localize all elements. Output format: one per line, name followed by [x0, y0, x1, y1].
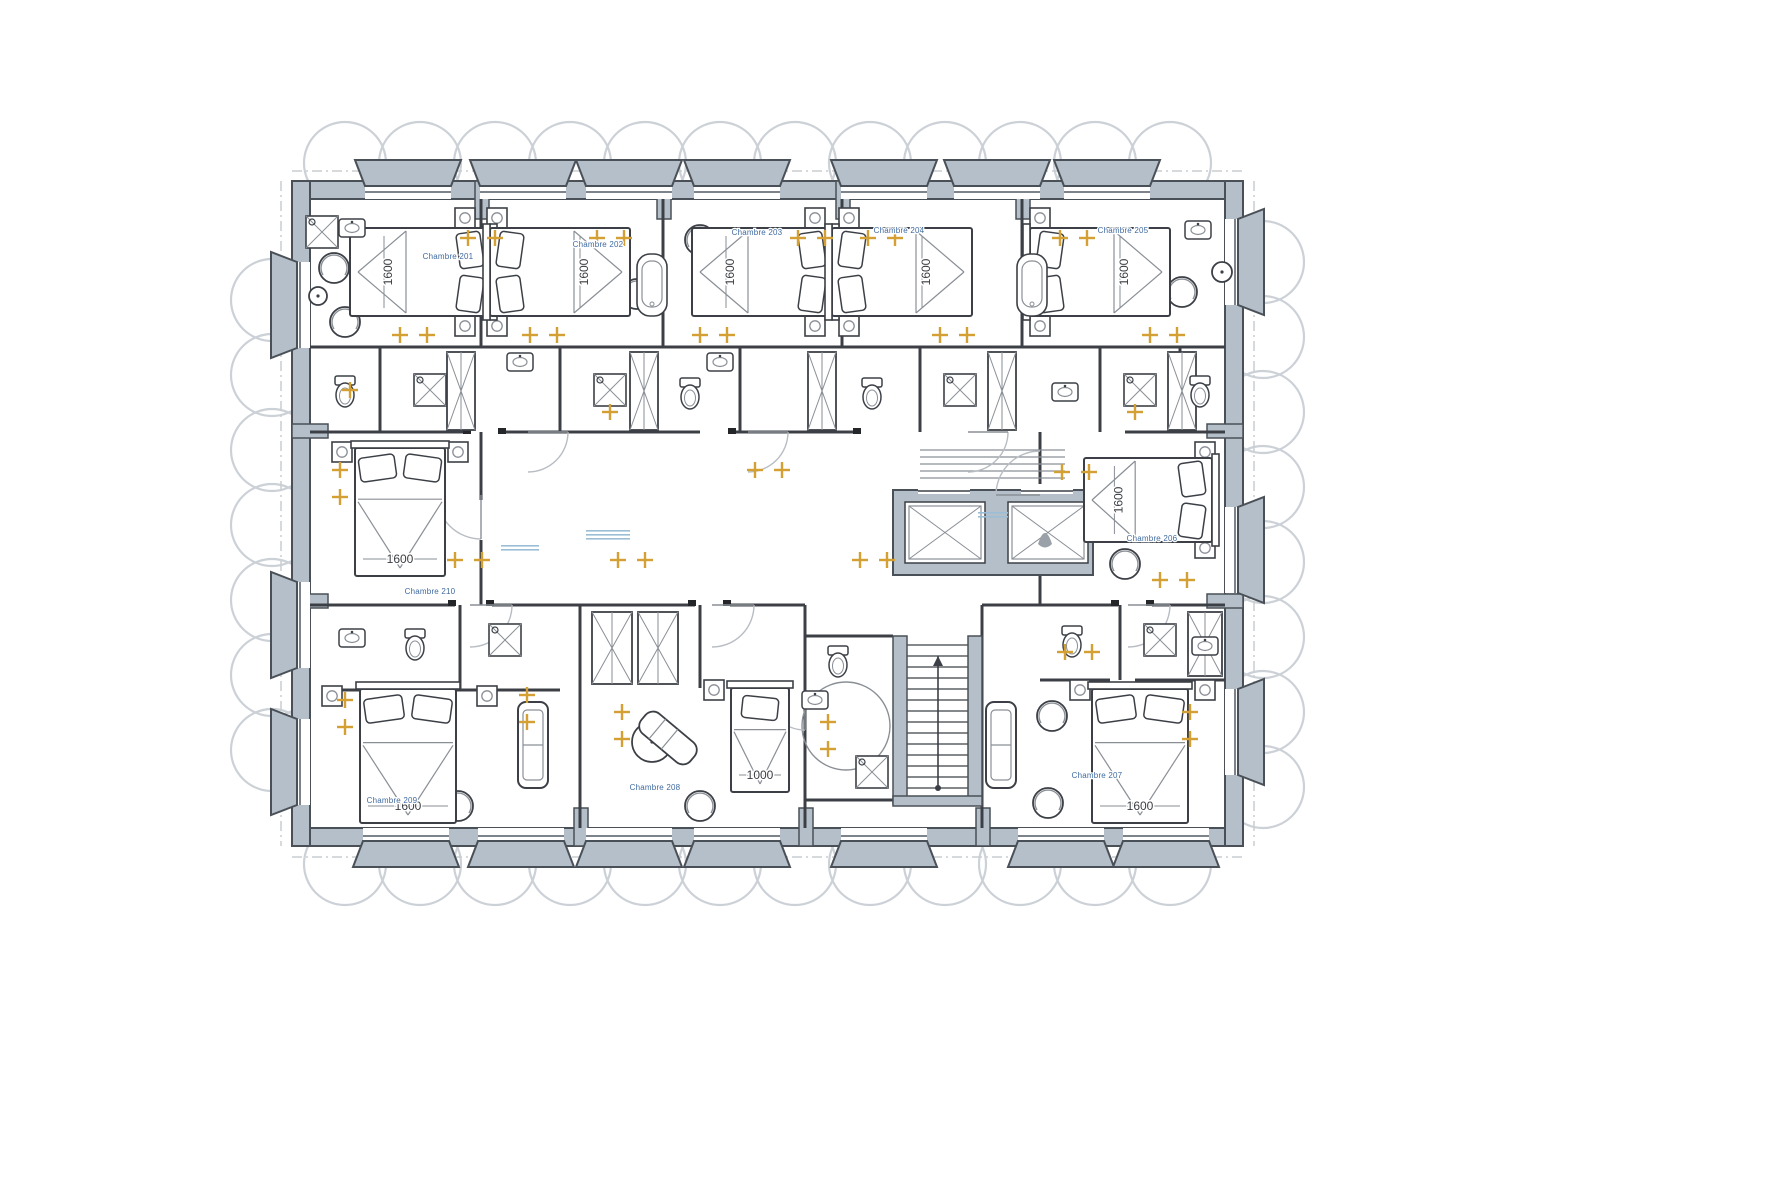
- bed-pillow: [741, 695, 779, 721]
- nightstand: [448, 442, 468, 462]
- bed-dimension-label: 1600: [1111, 486, 1125, 513]
- bed-headboard: [1212, 454, 1219, 546]
- window-bay-top: [576, 160, 682, 186]
- shower-symbol: [489, 624, 521, 656]
- bed-pillow: [838, 275, 867, 313]
- round-table-center: [316, 294, 319, 297]
- sink-faucet: [351, 631, 354, 634]
- bed-dimension-label: 1600: [1117, 258, 1131, 285]
- toilet-symbol: [405, 629, 425, 660]
- bed: 1600: [483, 224, 630, 320]
- armchair: [1033, 788, 1063, 818]
- window-bay-left: [271, 572, 297, 678]
- sink-symbol: [339, 629, 365, 647]
- nightstand: [1030, 208, 1050, 228]
- room-label: Chambre 207: [1072, 771, 1123, 780]
- toilet-symbol: [1190, 376, 1210, 407]
- bed: 1600: [1088, 682, 1192, 823]
- bed-dimension-label: 1600: [919, 258, 933, 285]
- bed-dimension-label: 1600: [723, 258, 737, 285]
- window-bay-left: [271, 709, 297, 815]
- nightstand: [805, 316, 825, 336]
- window-bay-bottom: [468, 841, 574, 867]
- annotation-mark: [978, 512, 1008, 514]
- room-label: Chambre 210: [405, 587, 456, 596]
- window-bay-right: [1238, 679, 1264, 785]
- bed-headboard: [1088, 682, 1192, 689]
- toilet-symbol: [335, 376, 355, 407]
- toilet-bowl: [1191, 383, 1209, 407]
- staircase: [893, 636, 982, 806]
- bed-headboard: [727, 681, 793, 688]
- sink-faucet: [1204, 639, 1207, 642]
- toilet-bowl: [406, 636, 424, 660]
- room-label: Chambre 208: [630, 783, 681, 792]
- sink-symbol: [1185, 221, 1211, 239]
- bed-pillow: [1143, 694, 1184, 723]
- window-bay-right: [1238, 209, 1264, 315]
- window-bay-bottom: [353, 841, 459, 867]
- door-jamb: [1111, 600, 1119, 606]
- sink-symbol: [802, 691, 828, 709]
- bathtub-symbol: [637, 254, 667, 316]
- bathtub-symbol: [1017, 254, 1047, 316]
- sink-faucet: [351, 221, 354, 224]
- window-bay-top: [944, 160, 1050, 186]
- bed-pillow: [1178, 461, 1206, 498]
- room-label: Chambre 204: [874, 226, 925, 235]
- window-bay-top: [684, 160, 790, 186]
- window-bay-bottom: [1113, 841, 1219, 867]
- bed-pillow: [1178, 503, 1206, 540]
- sink-faucet: [814, 693, 817, 696]
- window-bay-top: [831, 160, 937, 186]
- nightstand: [839, 208, 859, 228]
- nightstand: [704, 680, 724, 700]
- shower-symbol: [414, 374, 446, 406]
- window-bay-top: [355, 160, 461, 186]
- window-bay-bottom: [576, 841, 682, 867]
- nightstand: [477, 686, 497, 706]
- bed-pillow: [496, 275, 525, 313]
- bed: 1600: [692, 224, 839, 320]
- elevator-door-opening: [918, 484, 970, 494]
- bed: 1600: [351, 441, 449, 576]
- bed-pillow: [403, 454, 442, 483]
- door-jamb: [728, 428, 736, 434]
- room-label: Chambre 201: [423, 252, 474, 261]
- sink-symbol: [1192, 637, 1218, 655]
- bed-pillow: [838, 231, 867, 269]
- armchair: [1037, 701, 1067, 731]
- window-bay-top: [470, 160, 576, 186]
- bed-headboard: [356, 682, 460, 689]
- sink-faucet: [1197, 223, 1200, 226]
- bed-pillow: [363, 694, 404, 723]
- shower-symbol: [1124, 374, 1156, 406]
- bed: 1600: [1084, 454, 1219, 546]
- toilet-symbol: [828, 646, 848, 677]
- window-bay-right: [1238, 497, 1264, 603]
- window-bay-bottom: [831, 841, 937, 867]
- room-label: Chambre 206: [1127, 534, 1178, 543]
- room-label: Chambre 209: [367, 796, 418, 805]
- armchair: [1167, 277, 1197, 307]
- bed-dimension-label: 1000: [747, 768, 774, 782]
- nightstand: [332, 442, 352, 462]
- nightstand: [805, 208, 825, 228]
- floor-plan-page: 1600160016001600160016001600160010001600…: [0, 0, 1776, 1200]
- bed-pillow: [798, 275, 827, 313]
- toilet-bowl: [863, 385, 881, 409]
- bed-pillow: [358, 454, 397, 483]
- door-jamb: [853, 428, 861, 434]
- annotation-mark: [501, 549, 539, 551]
- shower-symbol: [306, 216, 338, 248]
- shower-symbol: [856, 756, 888, 788]
- nightstand: [839, 316, 859, 336]
- annotation-mark: [978, 516, 1008, 518]
- round-table-center: [1220, 270, 1223, 273]
- armchair: [1110, 549, 1140, 579]
- bed-pillow: [411, 694, 452, 723]
- bed-pillow: [496, 231, 525, 269]
- bed: 1000: [727, 681, 793, 792]
- nightstand: [455, 316, 475, 336]
- bed-pillow: [798, 231, 827, 269]
- room-label: Chambre 205: [1098, 226, 1149, 235]
- annotation-mark: [586, 538, 630, 540]
- window-bay-left: [271, 252, 297, 358]
- sink-symbol: [707, 353, 733, 371]
- toilet-bowl: [681, 385, 699, 409]
- bed-pillow: [1095, 694, 1136, 723]
- door-jamb: [688, 600, 696, 606]
- sink-symbol: [507, 353, 533, 371]
- door-jamb: [448, 600, 456, 606]
- annotation-mark: [586, 534, 630, 536]
- sink-faucet: [719, 355, 722, 358]
- armchair: [319, 253, 349, 283]
- annotation-mark: [501, 545, 539, 547]
- sink-faucet: [1064, 385, 1067, 388]
- bed-dimension-label: 1600: [381, 258, 395, 285]
- sink-symbol: [339, 219, 365, 237]
- window-bay-bottom: [684, 841, 790, 867]
- door-jamb: [498, 428, 506, 434]
- nightstand: [1070, 680, 1090, 700]
- bed-pillow: [456, 275, 485, 313]
- nightstand: [322, 686, 342, 706]
- sink-symbol: [1052, 383, 1078, 401]
- shower-symbol: [944, 374, 976, 406]
- nightstand: [1195, 680, 1215, 700]
- stair-wall: [968, 636, 982, 804]
- elevator-door-opening: [1021, 484, 1073, 494]
- bed-dimension-label: 1600: [577, 258, 591, 285]
- toilet-bowl: [336, 383, 354, 407]
- toilet-symbol: [680, 378, 700, 409]
- window-bay-top: [1054, 160, 1160, 186]
- bed-headboard: [351, 441, 449, 448]
- shower-symbol: [594, 374, 626, 406]
- nightstand: [1030, 316, 1050, 336]
- stair-arrow-start: [935, 785, 941, 791]
- stair-wall: [893, 796, 982, 806]
- armchair: [685, 791, 715, 821]
- bed-dimension-label: 1600: [1127, 799, 1154, 813]
- annotation-mark: [586, 530, 630, 532]
- stair-wall: [893, 636, 907, 804]
- shower-symbol: [1144, 624, 1176, 656]
- bed-pillow: [456, 231, 485, 269]
- room-label: Chambre 203: [732, 228, 783, 237]
- window-bay-bottom: [1008, 841, 1114, 867]
- floor-plan-canvas: 1600160016001600160016001600160010001600…: [0, 0, 1776, 1200]
- sink-faucet: [519, 355, 522, 358]
- nightstand: [455, 208, 475, 228]
- toilet-bowl: [829, 653, 847, 677]
- room-label: Chambre 202: [573, 240, 624, 249]
- toilet-symbol: [862, 378, 882, 409]
- bed-dimension-label: 1600: [387, 552, 414, 566]
